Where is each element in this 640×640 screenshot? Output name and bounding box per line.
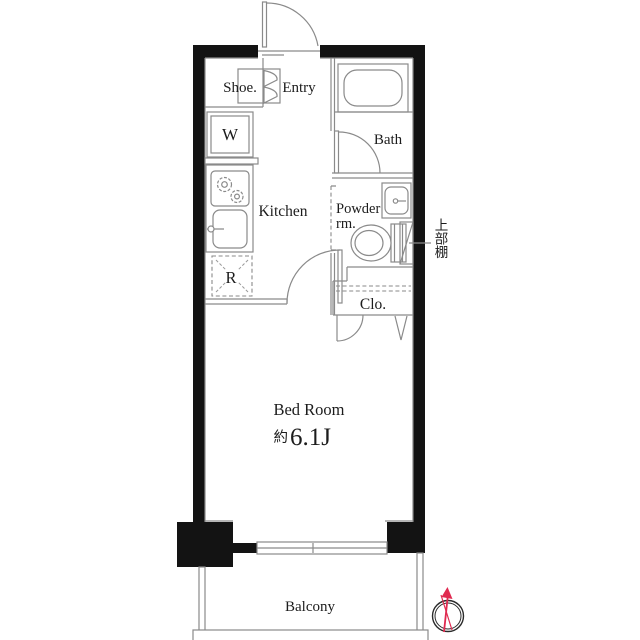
kitchen-room-label: Kitchen (258, 203, 307, 220)
balcony-railing-right (417, 553, 423, 631)
upper-shelf-label: 上部棚 (433, 218, 449, 259)
closet-label: Clo. (360, 296, 386, 313)
bath-powder-wall (332, 173, 413, 178)
closet-door-icon (395, 316, 407, 340)
entry-door-leaf (263, 2, 267, 47)
partition-walls (331, 58, 336, 315)
bedroom-area-prefix: 約 (274, 429, 289, 446)
balcony-railing-left (199, 567, 205, 631)
bedroom-door-leaf (338, 250, 342, 303)
washer-label: W (222, 125, 239, 144)
powder-room-label: Powder (336, 201, 380, 217)
toilet (351, 224, 406, 262)
compass-needle-arrowhead (442, 587, 453, 599)
compass-icon (433, 587, 464, 632)
floorplan-page: Shoe. Entry W Kitchen R (0, 0, 640, 640)
balcony-label: Balcony (285, 599, 335, 615)
corner-pillar (177, 522, 233, 567)
entry-door-swing (267, 3, 319, 46)
entry-room-label: Entry (282, 80, 316, 96)
bedroom-area-value: 6.1J (290, 424, 331, 451)
kitchen-bedroom-wall (205, 299, 287, 304)
bath-room-label: Bath (374, 132, 403, 148)
bottom-right-wall-block (387, 522, 425, 553)
kitchen-area: Kitchen R (205, 165, 308, 304)
closet-door-swing (337, 315, 363, 341)
refrigerator-label: R (225, 268, 236, 287)
bath-door-leaf (335, 131, 339, 173)
window-sill-stub (233, 543, 257, 553)
stove (211, 171, 249, 206)
bath-room: Bath (332, 64, 413, 178)
floorplan-drawing: Shoe. Entry W Kitchen R (0, 0, 640, 640)
washer-space: W (205, 112, 258, 164)
closet-hanger-pipe (336, 286, 411, 291)
powder-room-label-2: rm. (336, 216, 356, 232)
balcony-window (257, 542, 387, 554)
shoe-room-label: Shoe. (223, 80, 257, 96)
bedroom-door (287, 250, 342, 303)
bedroom-door-swing (287, 250, 340, 303)
compass-needle (444, 594, 448, 632)
balcony-railing-front (193, 630, 428, 640)
bedroom-label: Bed Room (273, 400, 344, 419)
powder-room: Powder rm. 上部棚 (336, 183, 448, 264)
closet: Clo. (333, 267, 413, 341)
bedroom: Bed Room 約 6.1J (205, 400, 413, 554)
